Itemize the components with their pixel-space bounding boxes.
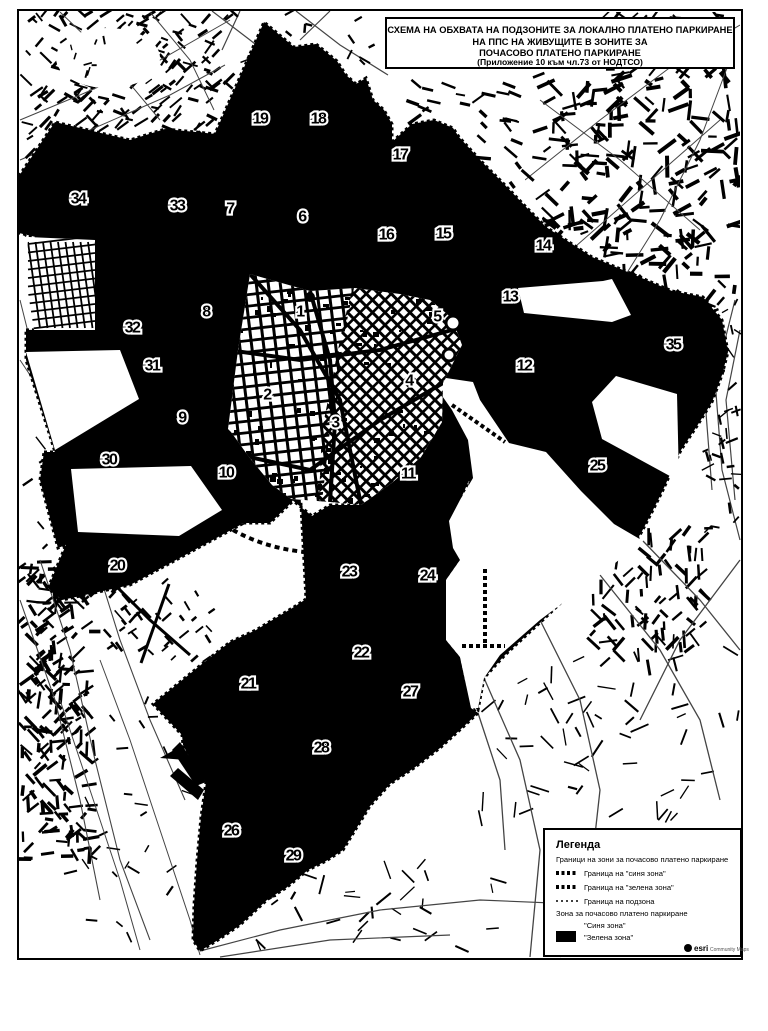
svg-text:20: 20 [110, 558, 126, 575]
svg-text:10: 10 [219, 465, 235, 482]
svg-text:Граница на "синя зона": Граница на "синя зона" [584, 869, 666, 878]
svg-text:30: 30 [102, 452, 118, 469]
svg-text:Граница на подзона: Граница на подзона [584, 897, 655, 906]
svg-text:19: 19 [253, 111, 269, 128]
svg-text:27: 27 [403, 684, 419, 701]
svg-text:Community Maps: Community Maps [710, 947, 749, 953]
svg-text:22: 22 [354, 645, 370, 662]
svg-text:Зона за почасово платено парки: Зона за почасово платено паркиране [556, 909, 688, 918]
svg-text:35: 35 [666, 337, 682, 354]
svg-text:32: 32 [125, 320, 141, 337]
svg-text:24: 24 [420, 568, 436, 585]
svg-text:18: 18 [311, 111, 327, 128]
svg-text:17: 17 [393, 147, 409, 164]
svg-text:26: 26 [224, 823, 240, 840]
svg-text:23: 23 [342, 564, 358, 581]
svg-text:11: 11 [401, 466, 417, 483]
svg-text:12: 12 [517, 358, 533, 375]
svg-text:Граница на "зелена зона": Граница на "зелена зона" [584, 883, 674, 892]
svg-text:(Приложение 10 към чл.73 от НО: (Приложение 10 към чл.73 от НОДТСО) [477, 57, 643, 67]
svg-text:34: 34 [71, 191, 87, 208]
svg-text:НА ППС НА ЖИВУЩИТЕ В ЗОНИТЕ ЗА: НА ППС НА ЖИВУЩИТЕ В ЗОНИТЕ ЗА [472, 37, 647, 47]
svg-text:25: 25 [590, 458, 606, 475]
svg-text:31: 31 [145, 358, 161, 375]
svg-text:СХЕМА НА ОБХВАТА НА ПОДЗОНИТЕ: СХЕМА НА ОБХВАТА НА ПОДЗОНИТЕ ЗА ЛОКАЛНО… [387, 25, 732, 35]
svg-text:esri: esri [694, 944, 708, 953]
svg-text:14: 14 [536, 238, 552, 255]
svg-text:16: 16 [379, 227, 395, 244]
svg-text:15: 15 [436, 226, 452, 243]
svg-text:21: 21 [241, 676, 257, 693]
svg-text:29: 29 [286, 848, 302, 865]
svg-text:Граници на зони за почасово пл: Граници на зони за почасово платено парк… [556, 855, 728, 864]
svg-text:13: 13 [503, 289, 519, 306]
svg-text:Легенда: Легенда [556, 839, 601, 851]
svg-text:"Зелена зона": "Зелена зона" [584, 933, 633, 942]
svg-text:"Синя зона": "Синя зона" [584, 921, 626, 930]
svg-text:33: 33 [170, 198, 186, 215]
svg-text:28: 28 [314, 740, 330, 757]
